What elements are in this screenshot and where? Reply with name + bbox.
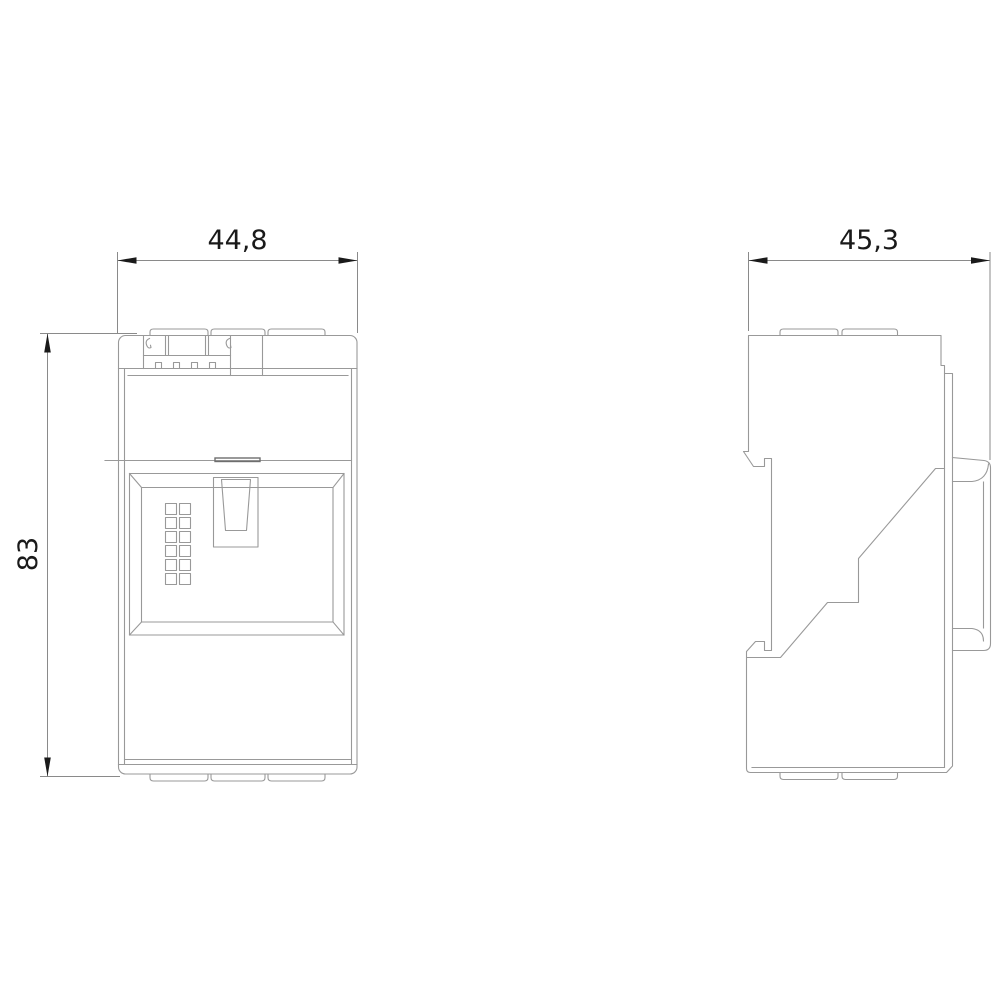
side-inner-contour <box>747 469 945 658</box>
dimension-arrow-icon <box>118 257 137 264</box>
dimension-label-side-depth: 45,3 <box>839 225 899 256</box>
dimension-side-depth: 45,3 <box>749 225 991 460</box>
frame-corner-bevel <box>333 622 344 635</box>
mounting-tab <box>268 775 325 782</box>
connector-guide-line <box>206 336 209 356</box>
led-square <box>166 546 177 557</box>
contact-square <box>156 363 162 369</box>
dimension-label-front-width: 44,8 <box>207 225 267 256</box>
dimension-front-width: 44,8 <box>118 225 358 333</box>
led-square <box>166 504 177 515</box>
extension-line <box>118 252 358 333</box>
mounting-tab <box>211 329 265 336</box>
extension-line <box>40 334 137 777</box>
led-square <box>180 504 191 515</box>
terminal-block-outline <box>953 458 991 651</box>
dimensions: 44,8 83 45,3 <box>13 225 990 777</box>
socket-frame <box>130 474 345 636</box>
mounting-tab <box>150 775 208 782</box>
mounting-tab <box>780 329 838 336</box>
contact-square <box>174 363 180 369</box>
led-square <box>166 574 177 585</box>
terminal-clamp-top <box>953 464 989 482</box>
side-view <box>744 329 991 780</box>
led-square <box>166 532 177 543</box>
terminal-clamp-bottom <box>953 629 984 642</box>
socket-frame-outer <box>130 474 345 636</box>
dimension-arrow-icon <box>44 334 51 353</box>
led-square <box>166 518 177 529</box>
side-profile-outline <box>744 336 953 773</box>
led-square <box>180 560 191 571</box>
led-square <box>180 518 191 529</box>
led-square <box>180 532 191 543</box>
frame-corner-bevel <box>130 622 142 635</box>
dimension-arrow-icon <box>339 257 358 264</box>
dimension-arrow-icon <box>971 257 990 264</box>
label-slot <box>215 458 260 462</box>
contact-square <box>192 363 198 369</box>
dimension-arrow-icon <box>44 758 51 777</box>
mounting-tab <box>268 329 325 336</box>
socket-frame-inner <box>142 488 334 623</box>
extension-line <box>749 252 991 460</box>
latch-hook <box>146 339 151 349</box>
dimension-label-front-height: 83 <box>13 537 44 571</box>
led-square <box>180 574 191 585</box>
mounting-tab <box>150 329 208 336</box>
front-view <box>105 329 357 781</box>
contact-square <box>210 363 216 369</box>
connector-guide-line <box>166 336 169 356</box>
frame-corner-bevel <box>130 474 142 488</box>
mounting-tab <box>211 775 265 782</box>
dimension-arrow-icon <box>749 257 768 264</box>
mounting-tab <box>842 773 898 780</box>
led-square <box>166 560 177 571</box>
front-top-connector-area <box>144 336 263 376</box>
mounting-tab <box>842 329 898 336</box>
terminal-block <box>953 458 991 651</box>
drawing-canvas: 44,8 83 45,3 <box>0 0 1000 1000</box>
led-grid <box>166 504 191 585</box>
led-square <box>180 546 191 557</box>
frame-corner-bevel <box>333 474 344 488</box>
technical-drawing: 44,8 83 45,3 <box>0 0 1000 1000</box>
mounting-tab <box>780 773 838 780</box>
front-body-outline <box>119 336 358 775</box>
